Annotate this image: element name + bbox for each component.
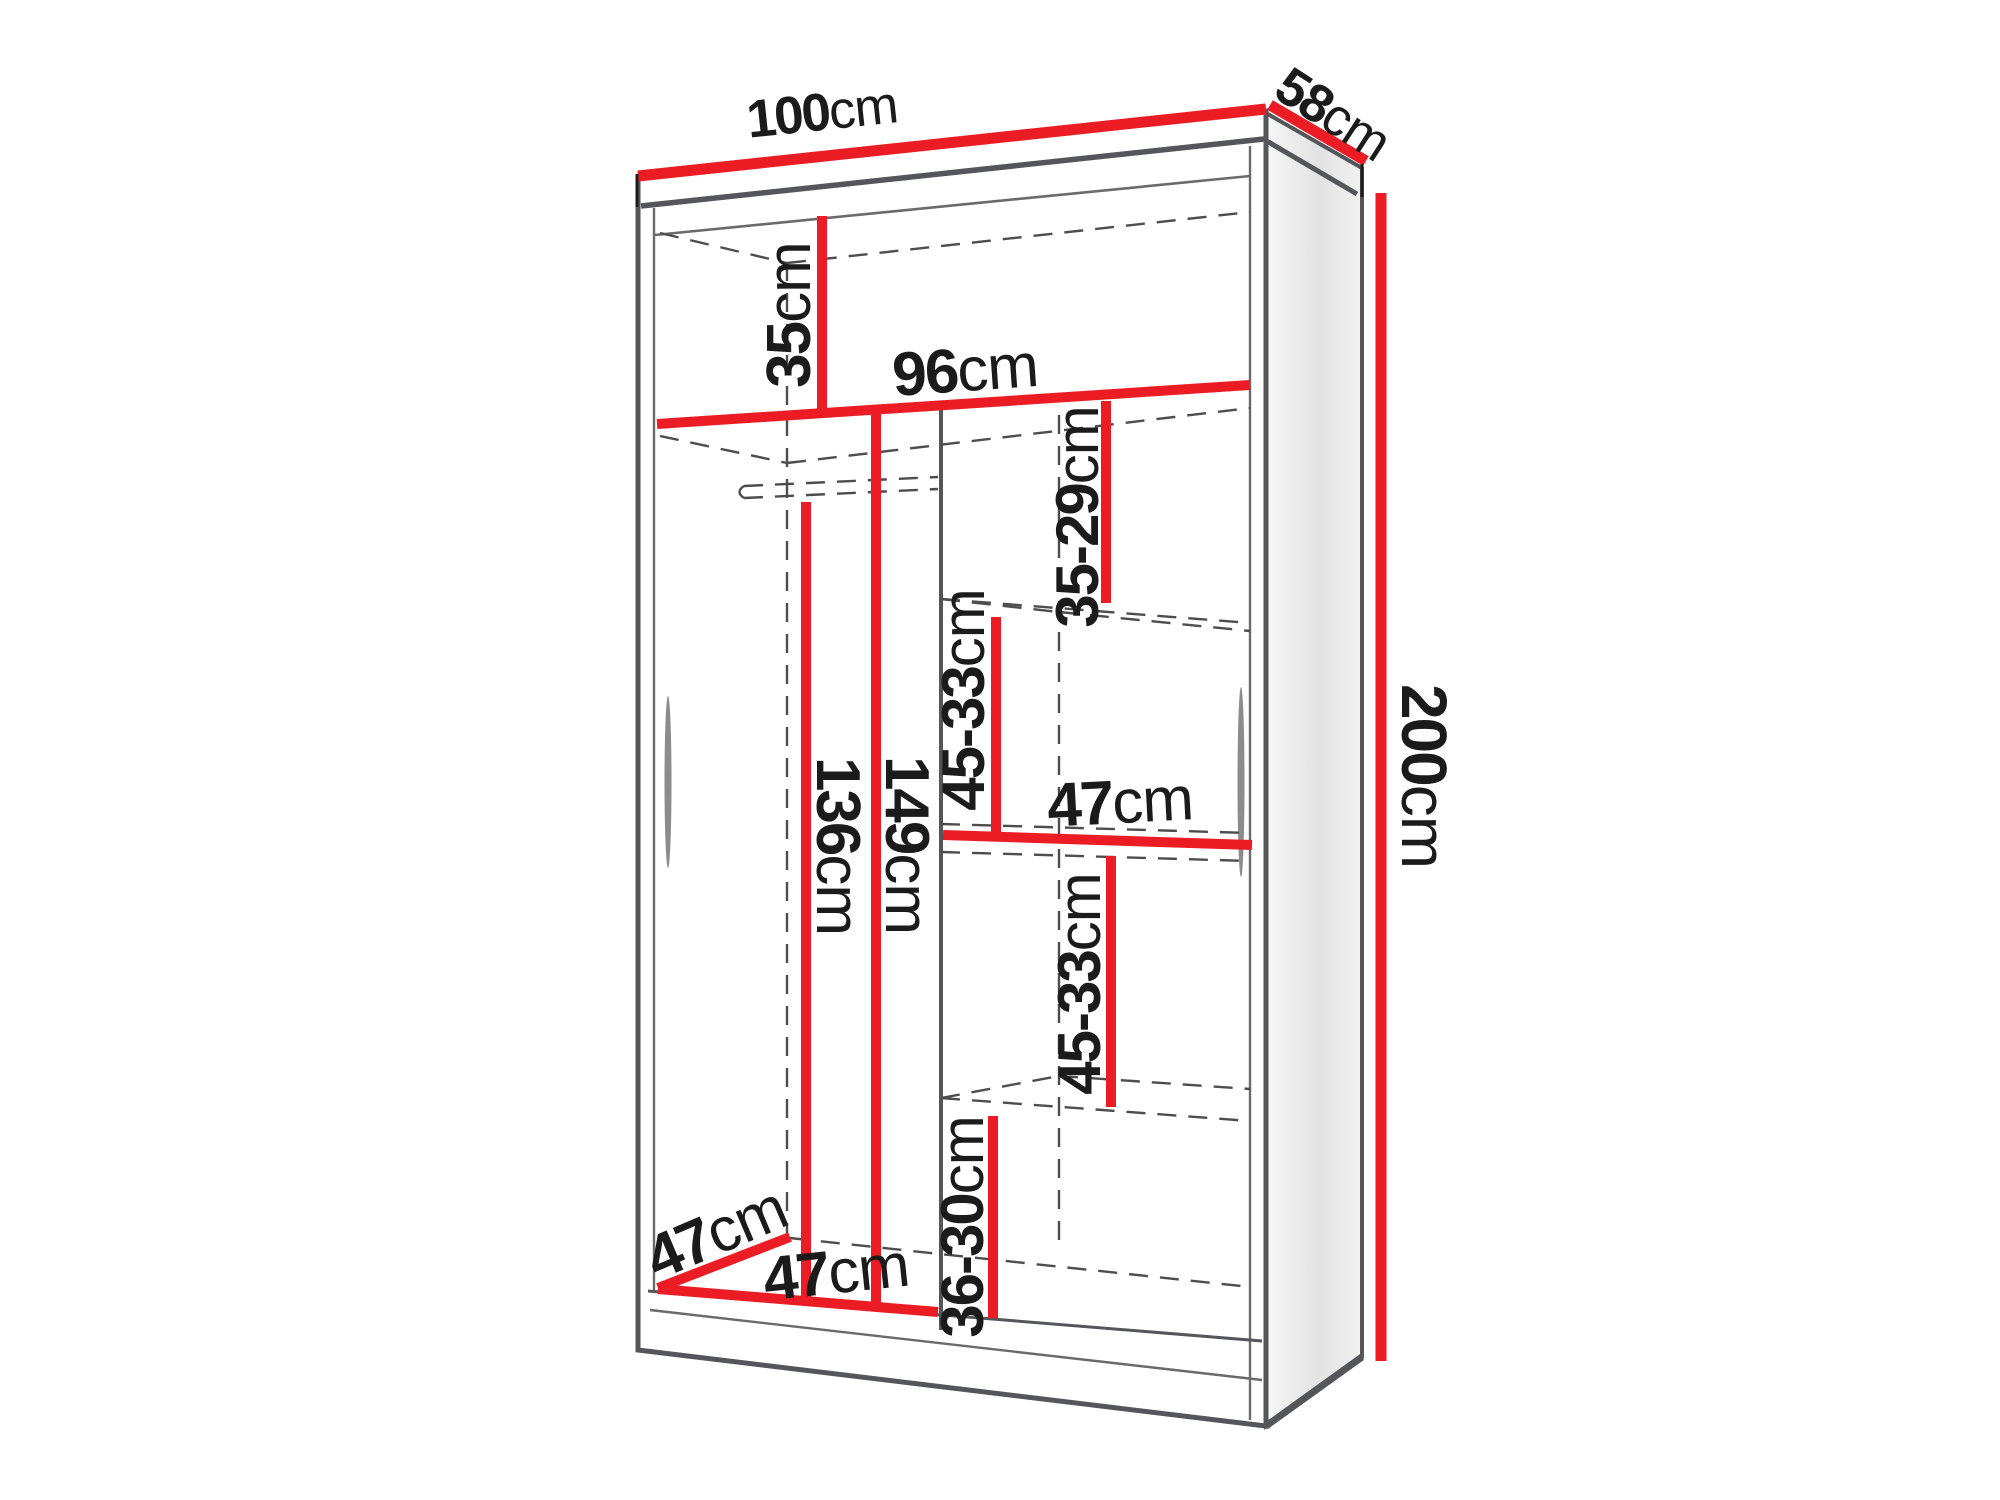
wardrobe-dimension-diagram: 100cm 58cm 200cm 35cm 96cm 35-29cm 45-33… [0, 0, 2000, 1500]
dim-unit: cm [1110, 764, 1194, 837]
dim-unit: cm [755, 242, 824, 323]
dim-value: 45-33 [1046, 951, 1113, 1095]
svg-text:35cm: 35cm [755, 242, 824, 388]
dim-unit: cm [929, 1116, 996, 1194]
svg-text:100cm: 100cm [744, 75, 900, 149]
svg-text:200cm: 200cm [1388, 684, 1460, 868]
dim-label-right-lower-compartment: 45-33cm [1046, 873, 1113, 1094]
dim-label-interior-width: 96cm [890, 331, 1040, 410]
dim-unit: cm [826, 75, 900, 141]
left-door-handle [665, 696, 672, 868]
dim-label-hanging-space-height: 136cm [804, 757, 873, 935]
dim-unit: cm [825, 1230, 912, 1307]
dim-unit: cm [1044, 406, 1111, 484]
dim-value: 136 [804, 757, 873, 855]
svg-text:36-30cm: 36-30cm [929, 1116, 996, 1337]
dim-unit: cm [930, 589, 997, 667]
dim-unit: cm [804, 854, 873, 935]
diagram-canvas: 100cm 58cm 200cm 35cm 96cm 35-29cm 45-33… [0, 0, 2000, 1500]
dim-unit: cm [873, 853, 942, 934]
dim-label-right-top-compartment: 35-29cm [1044, 406, 1111, 627]
svg-text:96cm: 96cm [890, 331, 1040, 410]
wardrobe-side-panel [1266, 113, 1362, 1426]
dim-value: 200 [1388, 684, 1460, 785]
dim-label-right-bottom-compartment: 36-30cm [929, 1116, 996, 1337]
dim-value: 47 [1045, 768, 1113, 840]
dim-label-left-section-height: 149cm [873, 756, 942, 934]
svg-text:35-29cm: 35-29cm [1044, 406, 1111, 627]
dim-label-right-section-width: 47cm [1045, 764, 1194, 841]
svg-text:47cm: 47cm [1045, 764, 1194, 841]
svg-text:45-33cm: 45-33cm [1046, 873, 1113, 1094]
dim-unit: cm [1388, 785, 1460, 868]
dim-unit: cm [955, 331, 1040, 405]
dim-value: 35 [755, 322, 824, 387]
dim-value: 36-30 [929, 1194, 996, 1337]
svg-text:149cm: 149cm [873, 756, 942, 934]
dim-unit: cm [1046, 873, 1113, 951]
dim-label-top-shelf-height: 35cm [755, 242, 824, 388]
dim-value: 35-29 [1044, 484, 1111, 628]
dim-value: 149 [873, 756, 942, 854]
dim-value: 47 [760, 1239, 832, 1314]
dim-value: 96 [890, 336, 960, 409]
svg-text:136cm: 136cm [804, 757, 873, 935]
dim-label-total-height: 200cm [1388, 684, 1460, 868]
dim-value: 100 [744, 82, 833, 149]
dim-label-total-width: 100cm [744, 75, 900, 149]
